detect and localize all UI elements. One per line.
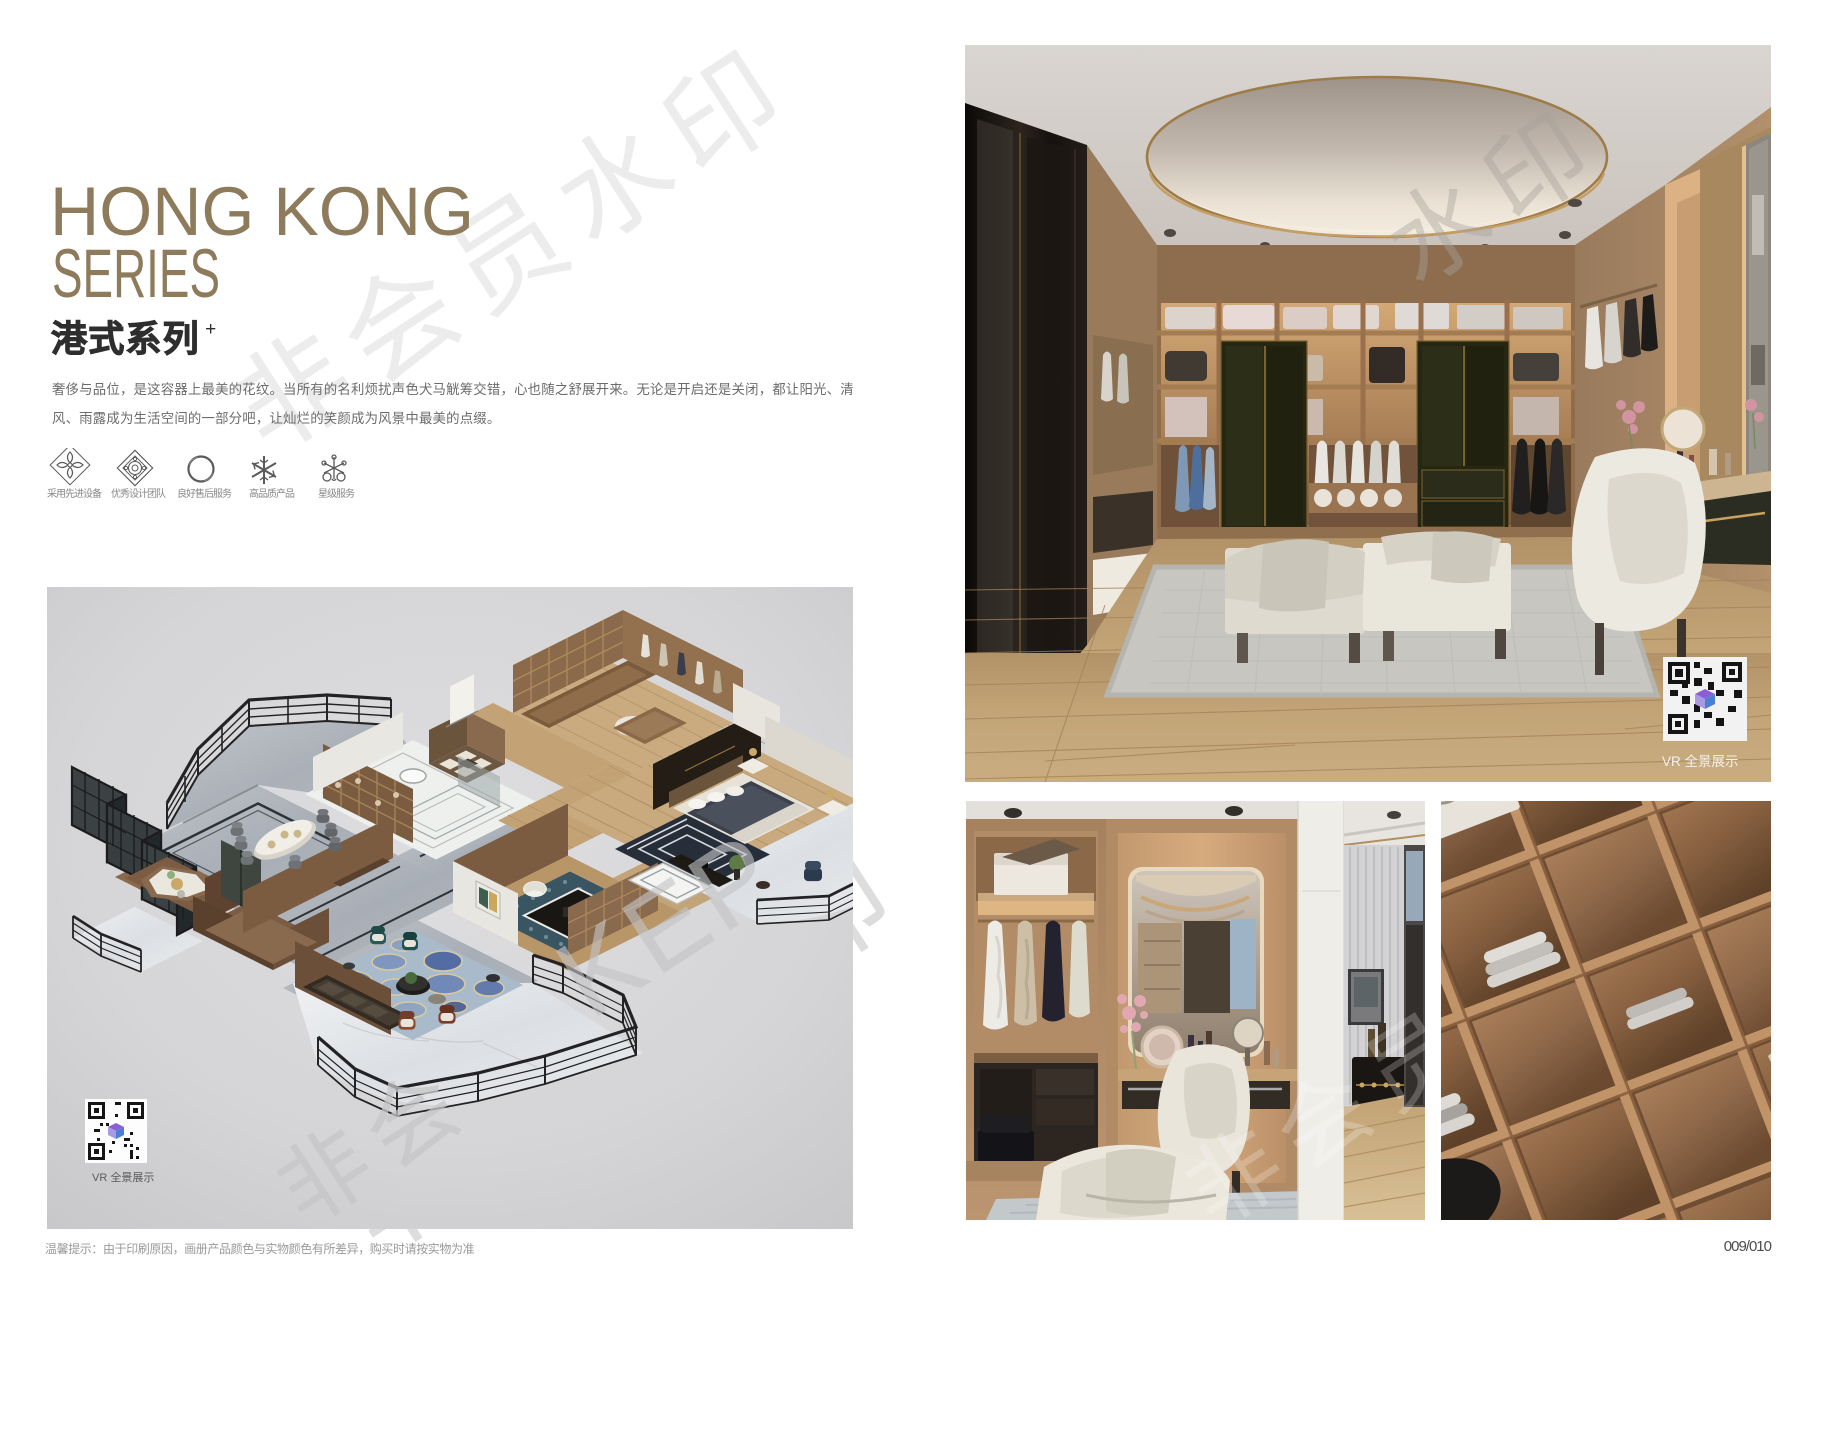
svg-text:SERIES: SERIES [52,235,220,310]
svg-text:VR 全景展示: VR 全景展示 [1662,753,1739,769]
svg-text:VR 全景展示: VR 全景展示 [92,1170,154,1184]
